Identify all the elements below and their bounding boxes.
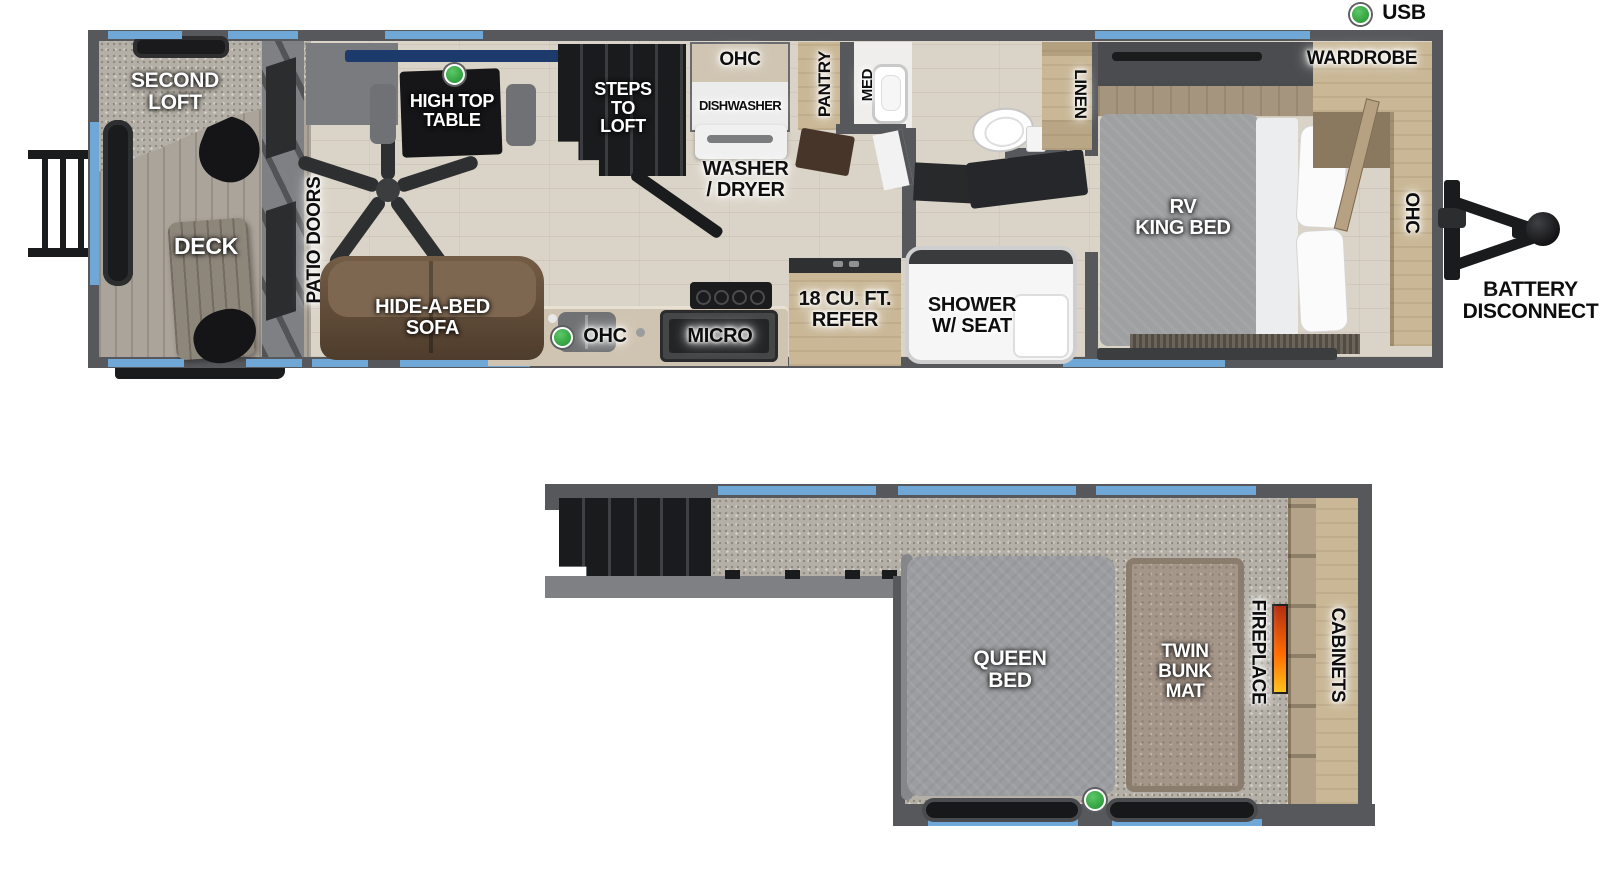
window bbox=[718, 486, 876, 495]
entry-step bbox=[115, 368, 285, 379]
deck-grill bbox=[103, 120, 133, 286]
shower-label: SHOWER W/ SEAT bbox=[912, 290, 1032, 342]
hitch-ball-icon bbox=[1526, 212, 1560, 246]
window bbox=[108, 359, 184, 367]
rail-tick bbox=[845, 570, 860, 579]
cabinet-door-column bbox=[1288, 498, 1316, 804]
rail-tick bbox=[785, 570, 800, 579]
usb-legend-label: USB bbox=[1376, 0, 1432, 26]
loft-ledge bbox=[545, 576, 907, 598]
hide-a-bed-sofa-label: HIDE-A-BED SOFA bbox=[360, 292, 505, 344]
cabinet-knob bbox=[636, 328, 645, 337]
bedroom-overhead bbox=[1098, 42, 1313, 86]
fireplace-label: FIREPLACE bbox=[1246, 575, 1270, 730]
cabinets-label: CABINETS bbox=[1325, 580, 1349, 730]
headboard-shelf bbox=[1098, 86, 1313, 116]
wardrobe-label: WARDROBE bbox=[1306, 44, 1418, 74]
skylight bbox=[1106, 798, 1258, 822]
deck-door bbox=[90, 122, 99, 285]
ohc-kitchen-label: OHC bbox=[574, 322, 636, 350]
skylight bbox=[922, 798, 1082, 822]
second-loft-label: SECOND LOFT bbox=[108, 66, 242, 118]
stool bbox=[370, 84, 396, 144]
loft-right-wall bbox=[1358, 484, 1372, 826]
dishwasher-label: DISHWASHER bbox=[694, 96, 786, 116]
linen-label: LINEN bbox=[1068, 39, 1092, 149]
stool bbox=[506, 84, 536, 146]
usb-port-icon bbox=[1084, 789, 1106, 811]
washer-dryer-label: WASHER / DRYER bbox=[688, 156, 803, 204]
exterior-rail-post bbox=[60, 155, 66, 255]
pillow bbox=[1295, 229, 1348, 333]
exterior-rail-post bbox=[42, 155, 48, 255]
rv-king-bed-label: RV KING BED bbox=[1108, 190, 1258, 246]
wall bbox=[1085, 252, 1098, 357]
deck-label: DECK bbox=[166, 232, 246, 262]
exterior-rail-post bbox=[78, 155, 84, 255]
bed-fold-strip bbox=[1256, 118, 1298, 342]
washer-dryer-unit bbox=[695, 125, 787, 159]
wall bbox=[840, 42, 854, 132]
fireplace-flame-icon bbox=[1272, 604, 1288, 694]
cooktop bbox=[690, 282, 772, 309]
loft-wall-cap bbox=[545, 484, 560, 510]
jack-head bbox=[1438, 208, 1466, 228]
med-label: MED bbox=[857, 43, 879, 127]
window bbox=[385, 31, 483, 39]
patio-door-panel bbox=[266, 201, 296, 321]
window bbox=[898, 486, 1076, 495]
ohc-dinette-label: OHC bbox=[708, 46, 772, 74]
steps-to-loft-label: STEPS TO LOFT bbox=[568, 60, 678, 156]
window bbox=[1063, 359, 1225, 367]
roof-hatch bbox=[133, 36, 229, 58]
window bbox=[1095, 31, 1310, 39]
window bbox=[1096, 486, 1256, 495]
battery-disconnect-label: BATTERY DISCONNECT bbox=[1438, 276, 1600, 326]
faucet bbox=[548, 314, 557, 323]
micro-label: MICRO bbox=[682, 322, 758, 350]
loft-stairs bbox=[559, 498, 711, 586]
usb-port-icon bbox=[552, 327, 573, 348]
refer-label: 18 CU. FT. REFER bbox=[784, 284, 906, 336]
usb-indicator-icon bbox=[1350, 4, 1371, 25]
usb-port-icon bbox=[444, 64, 465, 85]
window bbox=[228, 31, 298, 39]
curtain-rod bbox=[1112, 52, 1262, 61]
queen-bed-label: QUEEN BED bbox=[940, 642, 1080, 698]
patio-door-panel bbox=[266, 57, 296, 159]
rail-tick bbox=[725, 570, 740, 579]
window bbox=[312, 359, 368, 367]
bed-platform bbox=[1097, 348, 1337, 360]
floorplan-diagram: USB SECOND LOFT DECK PATIO DOORS bbox=[0, 0, 1600, 879]
window bbox=[108, 31, 182, 39]
high-top-table-label: HIGH TOP TABLE bbox=[396, 86, 508, 136]
pantry-label: PANTRY bbox=[813, 29, 837, 139]
loft-hallway bbox=[711, 498, 895, 578]
window bbox=[246, 359, 302, 367]
twin-bunk-mat-label: TWIN BUNK MAT bbox=[1134, 632, 1236, 712]
ohc-bedroom-label: OHC bbox=[1399, 158, 1423, 268]
